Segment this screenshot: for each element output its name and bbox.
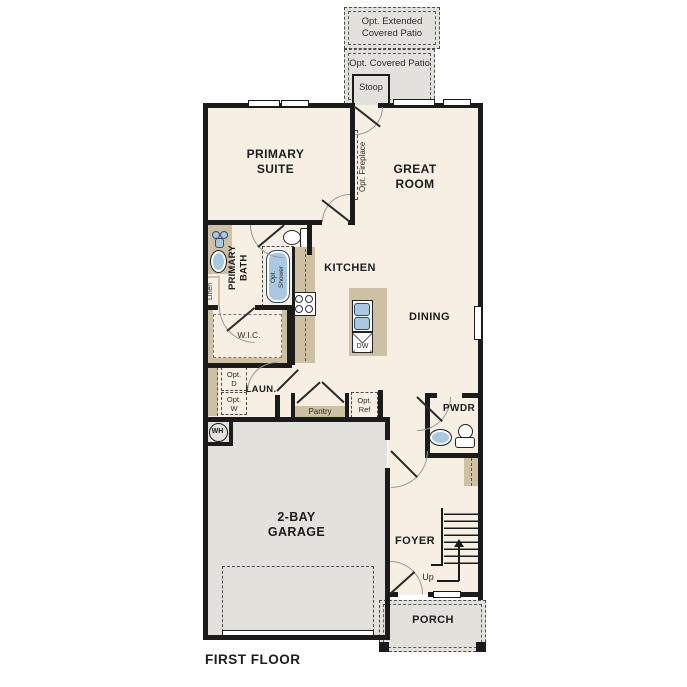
primary-suite-label: PRIMARY SUITE	[238, 147, 313, 176]
window	[281, 100, 309, 107]
bath-wall-right	[307, 225, 312, 255]
window	[474, 306, 482, 340]
closet-dash	[471, 458, 472, 486]
exterior-wall-right	[478, 103, 483, 600]
garage-wall-bottom	[203, 635, 390, 640]
sink-basin	[354, 317, 370, 330]
up-label: Up	[419, 572, 437, 583]
wic-wall-top	[203, 305, 218, 310]
ref-nook-wall	[378, 390, 383, 422]
porch-label: PORCH	[403, 614, 463, 627]
burner-icon	[295, 305, 303, 313]
wic-wall-right	[287, 305, 292, 368]
laundry-shelf	[208, 367, 218, 416]
porch-post	[476, 642, 486, 652]
dishwasher: DW	[352, 332, 373, 353]
opt-ref-label: Opt. Ref	[352, 396, 377, 414]
wic-wall-bottom	[203, 363, 292, 368]
powder-toilet-tank	[455, 437, 475, 448]
burner-icon	[305, 305, 313, 313]
laundry-wall-right	[275, 395, 280, 422]
covered-patio-label: Opt. Covered Patio	[347, 58, 432, 70]
laundry-label: LAUN.	[244, 384, 278, 396]
bath-toilet-bowl	[283, 230, 301, 245]
opt-washer-label: Opt. W	[222, 395, 246, 413]
garage-door-dashed	[222, 566, 374, 632]
sink-basin	[354, 303, 370, 316]
burner-icon	[295, 295, 303, 303]
optional-shower-tub: Opt. Shower	[266, 250, 290, 303]
stoop-label: Stoop	[354, 82, 388, 93]
kitchen-label: KITCHEN	[320, 262, 380, 275]
opt-dryer-label: Opt. D	[222, 370, 246, 388]
exterior-wall-left	[203, 103, 208, 640]
dw-label: DW	[355, 343, 370, 352]
porch-post	[379, 642, 389, 652]
up-arrow-head	[454, 539, 464, 547]
window	[433, 591, 461, 598]
water-heater: WH	[209, 423, 228, 442]
understair-closet	[464, 458, 479, 486]
extended-patio-label: Opt. Extended Covered Patio	[349, 16, 435, 39]
plan-title: FIRST FLOOR	[205, 652, 335, 668]
garage-wall-top	[203, 417, 390, 422]
up-arrow-stem	[458, 546, 460, 581]
wic-label: W.I.C.	[232, 330, 266, 340]
window	[443, 99, 471, 106]
porch: PORCH	[379, 600, 486, 652]
stoop: Stoop	[352, 74, 390, 105]
garage-wall-right	[385, 468, 390, 640]
foyer-wall-bottom	[460, 592, 478, 597]
faucet-icon	[215, 238, 224, 248]
up-arrow-stem	[437, 580, 459, 582]
garage-label: 2-BAY GARAGE	[259, 510, 334, 541]
wh-label: WH	[210, 428, 225, 437]
pantry-wall	[291, 393, 295, 419]
dining-label: DINING	[402, 311, 457, 324]
powder-label: PWDR	[440, 403, 478, 415]
pantry-label: Pantry	[295, 407, 345, 417]
foyer-label: FOYER	[394, 535, 436, 548]
bath-sink	[210, 250, 227, 273]
linen-label: Linen	[207, 279, 217, 304]
stair-rail-wall	[431, 564, 443, 566]
optional-refrigerator: Opt. Ref	[351, 392, 378, 418]
stairs	[444, 508, 478, 567]
pantry-wall	[345, 393, 349, 419]
floor-plan: Opt. Extended Covered Patio Opt. Covered…	[0, 0, 687, 687]
opt-fireplace-label: Opt. Fireplace	[358, 128, 372, 206]
great-room-label: GREAT ROOM	[384, 162, 446, 191]
burner-icon	[305, 295, 313, 303]
powder-wall-top	[462, 393, 478, 398]
window	[248, 100, 280, 107]
optional-extended-covered-patio: Opt. Extended Covered Patio	[344, 7, 440, 49]
garage-wall-right	[385, 417, 390, 440]
stair-rail-wall	[441, 508, 443, 566]
powder-sink	[429, 429, 452, 446]
opt-shower-label: Opt. Shower	[270, 255, 286, 299]
primary-bath-label: PRIMARY BATH	[227, 228, 249, 308]
kitchen-back-wall	[292, 247, 295, 365]
window	[393, 99, 435, 106]
powder-wall-bottom	[425, 453, 483, 458]
